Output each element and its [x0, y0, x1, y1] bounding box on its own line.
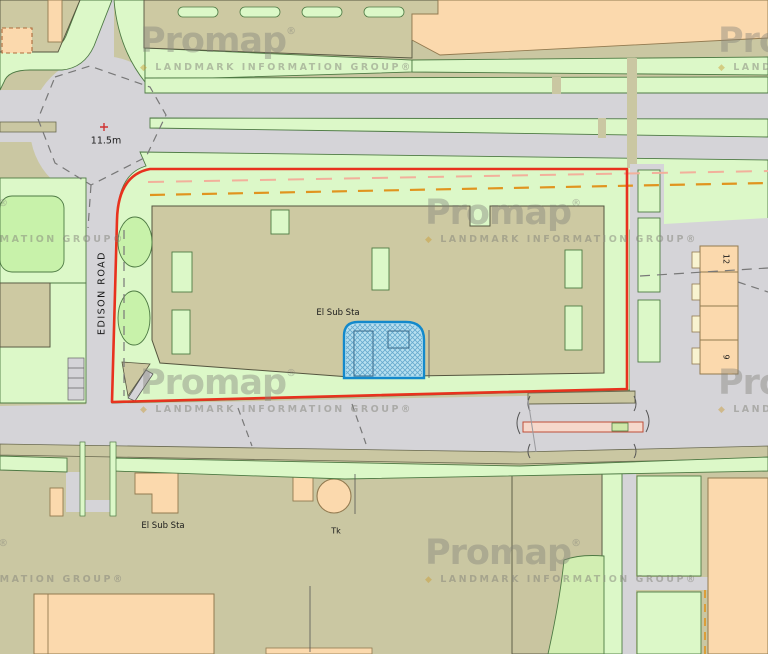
stub-verge-e	[110, 442, 116, 516]
courtyard	[565, 306, 582, 350]
porch	[692, 316, 700, 332]
refuge-gap	[598, 118, 606, 138]
garden-plot	[638, 218, 660, 292]
green-west-inner	[0, 196, 64, 272]
verge-gap	[552, 77, 561, 94]
courtyard	[372, 248, 389, 290]
building-bottom-sliver	[266, 648, 372, 654]
building-southeast-large	[708, 478, 768, 654]
houses-12-9	[700, 246, 738, 374]
building-west	[0, 283, 50, 347]
os-map	[0, 0, 768, 654]
courtyard	[565, 250, 582, 288]
garden-plot	[637, 476, 701, 576]
tank-circle	[317, 479, 351, 513]
map-canvas[interactable]: 11.5mEDISON ROADEl Sub StaEl Sub StaTk12…	[0, 0, 768, 654]
porch	[692, 348, 700, 364]
building-slot	[302, 7, 342, 17]
footbridge-green-seg	[612, 423, 628, 431]
verge-strip	[145, 77, 768, 93]
south-verge-1	[0, 456, 67, 472]
substation-hatch	[346, 324, 422, 376]
building-slot	[178, 7, 218, 17]
courtyard	[172, 310, 190, 354]
steps	[68, 358, 84, 400]
building-slot	[364, 7, 404, 17]
west-road-island	[0, 122, 56, 132]
road-west	[0, 90, 56, 142]
building-peach-nw	[48, 0, 62, 42]
garden-plot	[638, 300, 660, 362]
garden-strip	[602, 472, 622, 654]
building-near-tank	[293, 476, 313, 501]
crossing-refuge	[627, 58, 637, 168]
stub-verge-w	[80, 442, 85, 516]
building-south-small	[50, 488, 63, 516]
tree-blob	[118, 217, 152, 267]
electricity-substation	[344, 322, 424, 378]
porch	[692, 284, 700, 300]
courtyard	[271, 210, 289, 234]
building-slot	[240, 7, 280, 17]
courtyard	[172, 252, 192, 292]
tree-blob	[118, 291, 150, 345]
garden-plot	[637, 592, 701, 654]
garden-plot	[638, 170, 660, 212]
building-outline-dashed	[2, 28, 32, 53]
building-southwest-large	[34, 594, 214, 654]
site-south-wall	[528, 391, 635, 404]
path-southeast	[622, 452, 636, 654]
verge-top-2	[412, 57, 768, 75]
porch	[692, 252, 700, 268]
